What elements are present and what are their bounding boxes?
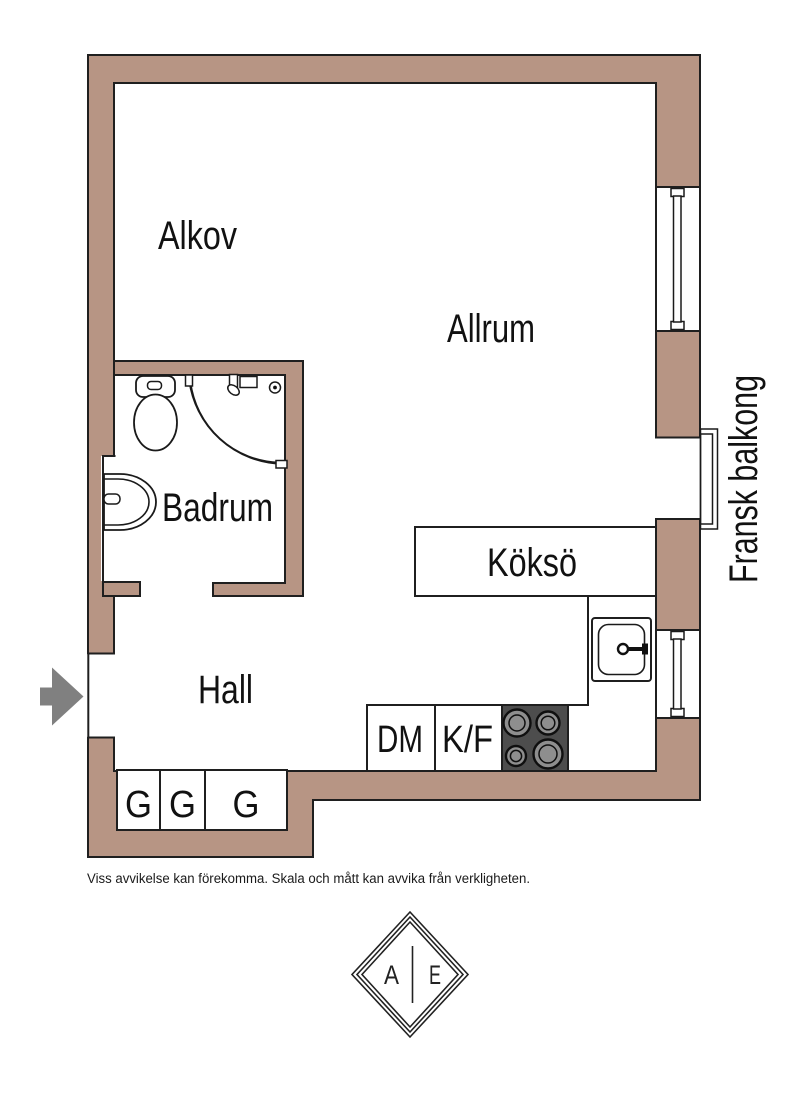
- kitchen-faucet-end: [642, 644, 648, 655]
- burner-ring: [539, 745, 557, 763]
- floor-plan-page: Alkov Allrum Badrum Hall Köksö DM K/F G …: [0, 0, 800, 1095]
- kitchen-faucet-base: [618, 644, 628, 654]
- window1-glass: [674, 196, 682, 322]
- basin-faucet: [104, 494, 120, 504]
- burner-ring: [541, 716, 555, 730]
- shower-handle: [276, 461, 287, 469]
- label-wardrobe-1: G: [125, 784, 152, 826]
- toilet-bowl: [134, 395, 177, 451]
- room-label-alkov: Alkov: [158, 214, 237, 258]
- label-wardrobe-3: G: [233, 784, 260, 826]
- room-label-kokso: Köksö: [487, 541, 577, 585]
- burner-ring: [510, 750, 521, 761]
- shower-drain-dot: [273, 386, 277, 390]
- window-icon: [656, 630, 700, 718]
- logo-letter-left: A: [384, 960, 399, 990]
- room-label-hall: Hall: [198, 668, 253, 712]
- shower-mixer-b: [240, 377, 257, 388]
- label-wardrobe-2: G: [169, 784, 196, 826]
- toilet-icon: [134, 376, 177, 451]
- entrance-opening: [87, 654, 116, 737]
- logo-letter-right: E: [429, 960, 441, 990]
- room-label-badrum: Badrum: [162, 486, 273, 530]
- shower-hinge: [186, 375, 193, 386]
- floor-plan-canvas: Alkov Allrum Badrum Hall Köksö DM K/F G …: [0, 0, 800, 1095]
- disclaimer-text: Viss avvikelse kan förekomma. Skala och …: [87, 871, 530, 886]
- label-dishwasher: DM: [377, 719, 423, 761]
- kitchen-sink-icon: [592, 618, 651, 681]
- balcony-opening: [655, 438, 702, 519]
- window-icon: [656, 187, 700, 331]
- room-label-allrum: Allrum: [447, 307, 535, 351]
- burner-ring: [509, 715, 525, 731]
- stove-icon: [502, 705, 568, 771]
- label-fridge-freezer: K/F: [442, 719, 493, 761]
- bathroom-wall-stub: [103, 582, 140, 596]
- kitchen-faucet-arm: [628, 647, 645, 651]
- label-fransk-balkong: Fransk balkong: [722, 375, 766, 583]
- window2-glass: [674, 639, 682, 709]
- toilet-button: [148, 382, 162, 390]
